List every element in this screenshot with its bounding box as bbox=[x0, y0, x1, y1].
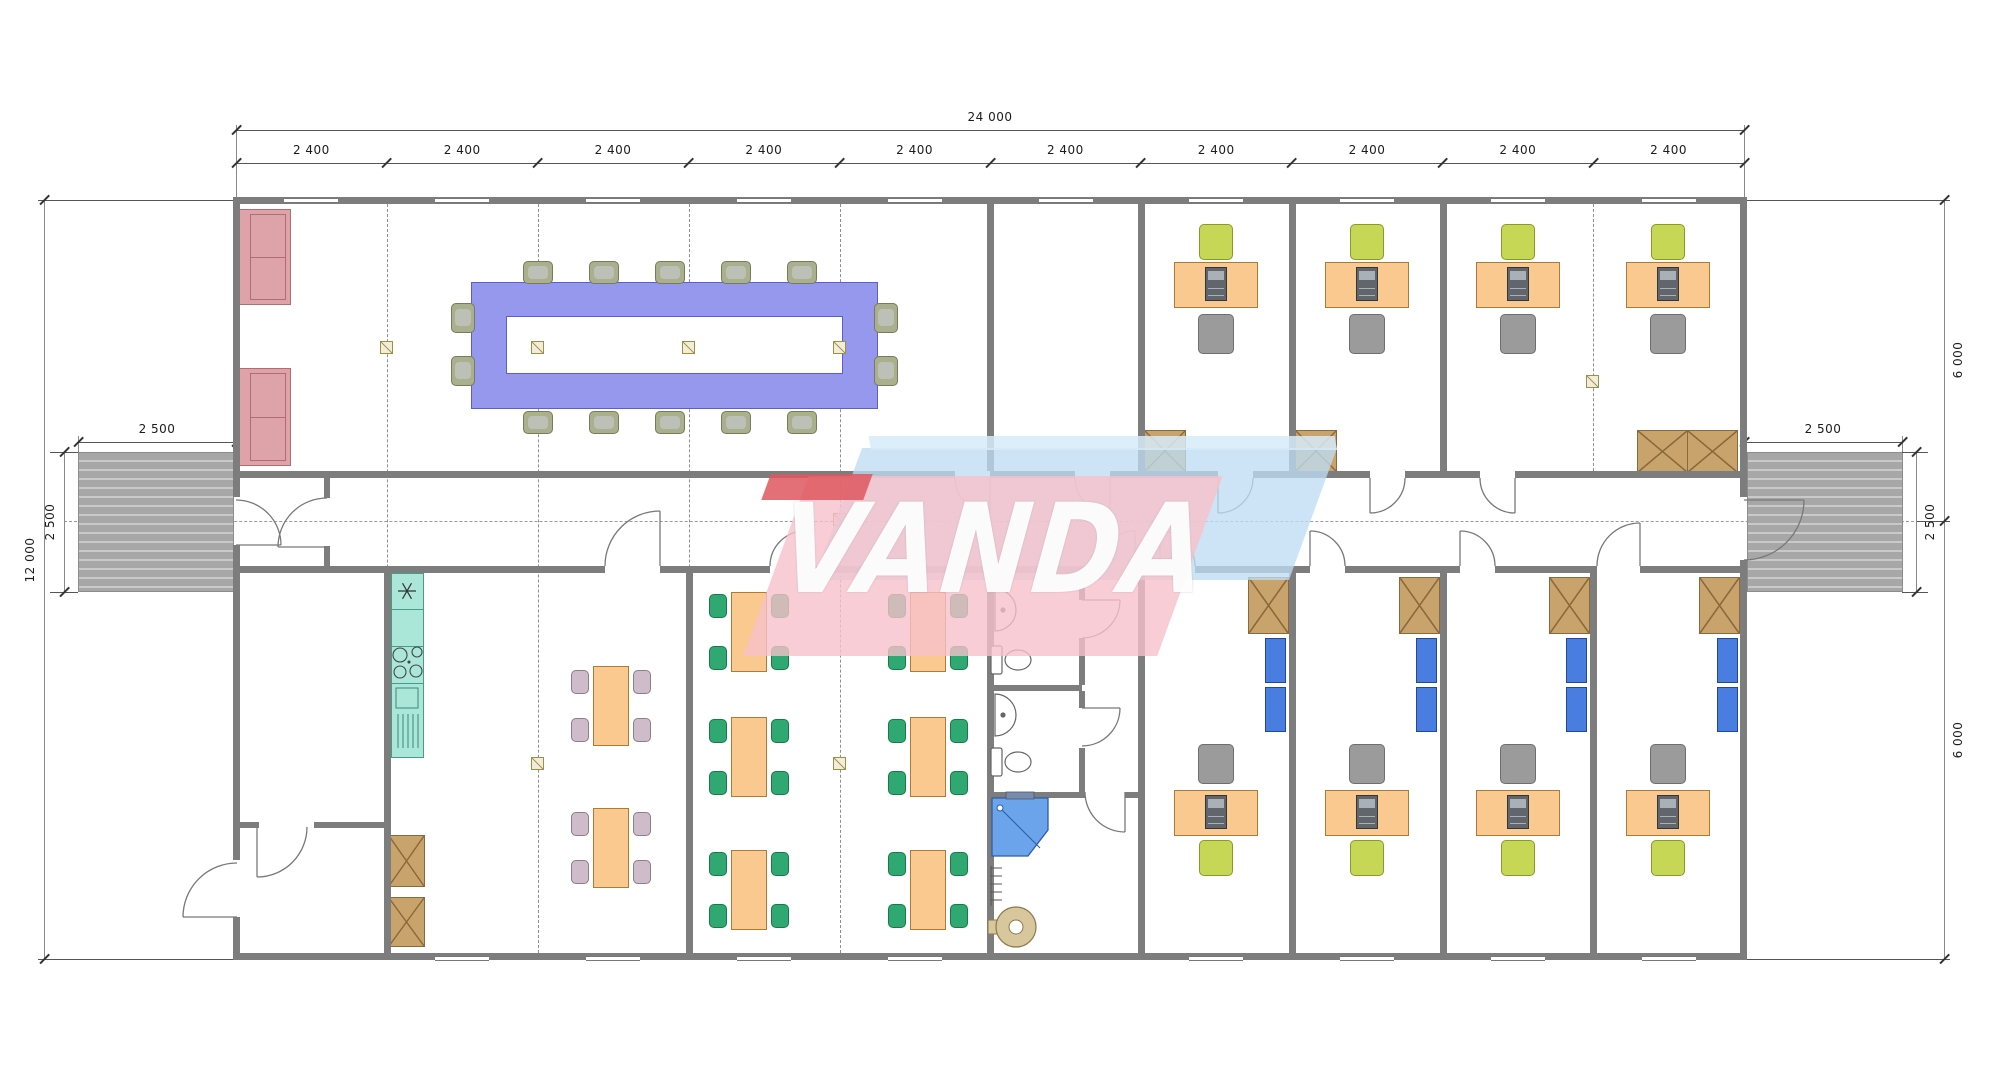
wall bbox=[1079, 638, 1085, 685]
conference-chair bbox=[655, 261, 685, 284]
dining-chair-green bbox=[771, 771, 789, 795]
office-chair-gray bbox=[1500, 314, 1536, 354]
dining-chair-green bbox=[950, 646, 968, 670]
computer-vents bbox=[1660, 288, 1676, 296]
wall bbox=[233, 917, 240, 960]
dining-chair-green bbox=[709, 904, 727, 928]
conference-table-opening bbox=[506, 316, 843, 374]
window bbox=[435, 198, 489, 203]
computer-screen bbox=[1359, 271, 1375, 280]
wall bbox=[1440, 573, 1447, 953]
wardrobe bbox=[1144, 430, 1186, 472]
dimension-line bbox=[1747, 200, 1950, 201]
window bbox=[888, 198, 942, 203]
computer-screen bbox=[1359, 799, 1375, 808]
dimension-line bbox=[236, 130, 1744, 131]
sofa-cushions bbox=[250, 373, 286, 461]
conference-chair-seat bbox=[594, 266, 614, 279]
computer-vents bbox=[1208, 816, 1224, 824]
office-top-spare bbox=[994, 204, 1138, 471]
window bbox=[1642, 198, 1696, 203]
conference-chair bbox=[523, 411, 553, 434]
dining-chair-green bbox=[771, 904, 789, 928]
window bbox=[435, 956, 489, 961]
office-chair-lime bbox=[1199, 840, 1233, 876]
dimension-extension-line bbox=[64, 452, 65, 592]
window bbox=[737, 198, 791, 203]
wall bbox=[1740, 560, 1747, 960]
conference-chair bbox=[874, 303, 898, 333]
computer-icon bbox=[1356, 267, 1378, 301]
office-chair-lime bbox=[1501, 840, 1535, 876]
kitchen-counter-divider bbox=[392, 683, 423, 684]
window bbox=[1491, 956, 1545, 961]
conference-chair bbox=[523, 261, 553, 284]
wall bbox=[987, 204, 994, 471]
dining-chair-green bbox=[771, 852, 789, 876]
conference-chair bbox=[721, 261, 751, 284]
conference-chair-seat bbox=[455, 362, 470, 379]
canteen-chair-mauve bbox=[633, 860, 651, 884]
wall-cabinet-blue bbox=[1265, 687, 1286, 732]
conference-chair-seat bbox=[528, 416, 548, 429]
wall-cabinet-blue bbox=[1717, 638, 1738, 683]
office-chair-lime bbox=[1651, 224, 1685, 260]
dining-chair-green bbox=[888, 852, 906, 876]
column-symbol bbox=[833, 513, 846, 526]
wardrobe-panel bbox=[1400, 578, 1439, 633]
column-symbol bbox=[833, 341, 846, 354]
wardrobe-panel bbox=[389, 836, 424, 886]
dim-bay-width: 2 400 bbox=[896, 143, 933, 157]
conference-chair bbox=[451, 303, 475, 333]
wall bbox=[236, 566, 605, 573]
sofa bbox=[239, 368, 291, 466]
canteen-chair-mauve bbox=[571, 718, 589, 742]
conference-chair-seat bbox=[878, 309, 893, 326]
dining-table bbox=[910, 850, 946, 930]
computer-screen bbox=[1510, 271, 1526, 280]
wall bbox=[1590, 573, 1597, 953]
computer-icon bbox=[1356, 795, 1378, 829]
column-symbol bbox=[531, 757, 544, 770]
double-wardrobe bbox=[1637, 430, 1738, 473]
dim-half-height-bottom: 6 000 bbox=[1951, 722, 1965, 759]
dining-chair-green bbox=[888, 646, 906, 670]
computer-screen bbox=[1660, 799, 1676, 808]
wardrobe bbox=[1399, 577, 1440, 634]
canteen-chair-mauve bbox=[633, 812, 651, 836]
conference-chair bbox=[451, 356, 475, 386]
wall bbox=[990, 792, 1085, 798]
wardrobe-panel bbox=[1249, 578, 1288, 633]
conference-chair bbox=[787, 411, 817, 434]
wall-cabinet-blue bbox=[1416, 638, 1437, 683]
sofa-cushion-split bbox=[251, 257, 285, 258]
wall bbox=[1079, 748, 1085, 792]
conference-chair-seat bbox=[726, 266, 746, 279]
sofa-cushion-split bbox=[251, 417, 285, 418]
dimension-line bbox=[1744, 442, 1902, 443]
wall bbox=[324, 478, 330, 498]
dim-bay-width: 2 400 bbox=[595, 143, 632, 157]
kitchen-counter-divider bbox=[392, 646, 423, 647]
office-chair-lime bbox=[1501, 224, 1535, 260]
corridor bbox=[240, 478, 1740, 566]
wall bbox=[1253, 471, 1370, 478]
window bbox=[586, 198, 640, 203]
computer-vents bbox=[1510, 288, 1526, 296]
conference-chair-seat bbox=[528, 266, 548, 279]
wardrobe-panel bbox=[1638, 431, 1688, 472]
entrance-ramp-right bbox=[1747, 452, 1903, 592]
office-chair-gray bbox=[1349, 314, 1385, 354]
dining-chair-green bbox=[709, 719, 727, 743]
conference-chair-seat bbox=[594, 416, 614, 429]
conference-chair bbox=[655, 411, 685, 434]
dining-chair-green bbox=[771, 719, 789, 743]
dining-chair-green bbox=[888, 719, 906, 743]
wall bbox=[1345, 566, 1460, 573]
conference-chair bbox=[589, 411, 619, 434]
dining-chair-green bbox=[709, 594, 727, 618]
conference-chair-seat bbox=[792, 416, 812, 429]
kitchen-counter bbox=[391, 573, 424, 758]
window bbox=[888, 956, 942, 961]
dim-ramp-width-left: 2 500 bbox=[139, 422, 176, 436]
window bbox=[1340, 956, 1394, 961]
window bbox=[737, 956, 791, 961]
wardrobe-panel bbox=[1145, 431, 1185, 471]
dim-bay-width: 2 400 bbox=[1499, 143, 1536, 157]
conference-chair-seat bbox=[878, 362, 893, 379]
window bbox=[1039, 198, 1093, 203]
wall bbox=[314, 822, 387, 828]
entry-hall bbox=[240, 573, 384, 822]
dining-chair-green bbox=[771, 594, 789, 618]
dining-chair-green bbox=[950, 904, 968, 928]
conference-chair bbox=[874, 356, 898, 386]
entrance-ramp-left bbox=[78, 452, 234, 592]
office-chair-gray bbox=[1349, 744, 1385, 784]
corridor-centerline bbox=[64, 521, 1944, 522]
wall bbox=[1440, 204, 1447, 471]
wall-cabinet-blue bbox=[1717, 687, 1738, 732]
window bbox=[1189, 198, 1243, 203]
wardrobe bbox=[388, 835, 425, 887]
conference-chair-seat bbox=[792, 266, 812, 279]
dining-table bbox=[731, 592, 767, 672]
wall bbox=[1195, 566, 1310, 573]
computer-vents bbox=[1359, 288, 1375, 296]
dining-chair-green bbox=[888, 594, 906, 618]
column-symbol bbox=[1586, 375, 1599, 388]
dim-ramp-depth-right: 2 500 bbox=[1923, 504, 1937, 541]
office-chair-gray bbox=[1198, 744, 1234, 784]
conference-chair bbox=[589, 261, 619, 284]
dining-table bbox=[731, 717, 767, 797]
window bbox=[1491, 198, 1545, 203]
office-chair-lime bbox=[1350, 840, 1384, 876]
dimension-line bbox=[38, 200, 233, 201]
computer-icon bbox=[1205, 795, 1227, 829]
computer-screen bbox=[1208, 799, 1224, 808]
conference-chair-seat bbox=[726, 416, 746, 429]
sofa-cushions bbox=[250, 214, 286, 300]
dim-bay-width: 2 400 bbox=[1349, 143, 1386, 157]
dimension-extension-line bbox=[44, 200, 45, 959]
column-symbol bbox=[682, 341, 695, 354]
dim-building-height: 12 000 bbox=[23, 538, 37, 583]
computer-vents bbox=[1208, 288, 1224, 296]
wall-cabinet-blue bbox=[1566, 687, 1587, 732]
conference-chair-seat bbox=[660, 266, 680, 279]
dim-bay-width: 2 400 bbox=[293, 143, 330, 157]
wall bbox=[1125, 792, 1141, 798]
office-chair-lime bbox=[1350, 224, 1384, 260]
dim-ramp-width-right: 2 500 bbox=[1805, 422, 1842, 436]
window bbox=[1189, 956, 1243, 961]
storage-room bbox=[240, 828, 384, 953]
wall bbox=[1079, 691, 1085, 708]
dining-chair-green bbox=[950, 852, 968, 876]
computer-vents bbox=[1510, 816, 1526, 824]
wall bbox=[1495, 566, 1597, 573]
window bbox=[1340, 198, 1394, 203]
wall bbox=[233, 822, 259, 828]
wardrobe bbox=[388, 897, 425, 947]
wall bbox=[1079, 573, 1085, 600]
conference-chair-seat bbox=[455, 309, 470, 326]
wall bbox=[1740, 197, 1747, 497]
office-chair-gray bbox=[1650, 744, 1686, 784]
dining-chair-green bbox=[709, 646, 727, 670]
wc-room-1 bbox=[994, 573, 1079, 685]
wall bbox=[1110, 471, 1218, 478]
dim-overall-width: 24 000 bbox=[968, 110, 1013, 124]
office-chair-lime bbox=[1199, 224, 1233, 260]
dim-half-height-top: 6 000 bbox=[1951, 342, 1965, 379]
wardrobe-panel bbox=[1296, 431, 1336, 471]
column-symbol bbox=[531, 341, 544, 354]
wardrobe-panel bbox=[389, 898, 424, 946]
grid-line bbox=[1593, 204, 1594, 471]
canteen-table bbox=[593, 666, 629, 746]
conference-chair-seat bbox=[660, 416, 680, 429]
computer-icon bbox=[1507, 267, 1529, 301]
wall bbox=[990, 471, 1075, 478]
wall bbox=[987, 573, 994, 953]
wall bbox=[1515, 471, 1744, 478]
column-symbol bbox=[833, 757, 846, 770]
dining-chair-green bbox=[771, 646, 789, 670]
computer-icon bbox=[1657, 795, 1679, 829]
dining-chair-green bbox=[950, 594, 968, 618]
canteen-chair-mauve bbox=[633, 670, 651, 694]
dim-bay-width: 2 400 bbox=[1650, 143, 1687, 157]
shower-room bbox=[994, 798, 1141, 953]
dining-chair-green bbox=[950, 719, 968, 743]
dining-chair-green bbox=[888, 904, 906, 928]
column-symbol bbox=[380, 341, 393, 354]
computer-vents bbox=[1660, 816, 1676, 824]
wall bbox=[1289, 573, 1296, 953]
dining-chair-green bbox=[950, 771, 968, 795]
canteen-chair-mauve bbox=[571, 812, 589, 836]
dimension-line bbox=[78, 442, 236, 443]
window bbox=[586, 956, 640, 961]
wall bbox=[1138, 204, 1145, 471]
computer-vents bbox=[1359, 816, 1375, 824]
kitchen-counter-divider bbox=[392, 609, 423, 610]
canteen-table bbox=[593, 808, 629, 888]
wall bbox=[233, 545, 240, 860]
wall bbox=[990, 685, 1082, 691]
wardrobe-panel bbox=[1550, 578, 1589, 633]
dining-table bbox=[910, 717, 946, 797]
wardrobe-panel bbox=[1688, 431, 1737, 472]
dim-bay-width: 2 400 bbox=[745, 143, 782, 157]
wall bbox=[236, 471, 955, 478]
floor-plan: VANDA 24 0002 4002 4002 4002 4002 4002 4… bbox=[0, 0, 2000, 1069]
computer-icon bbox=[1205, 267, 1227, 301]
dining-chair-green bbox=[709, 771, 727, 795]
computer-screen bbox=[1510, 799, 1526, 808]
office-chair-gray bbox=[1198, 314, 1234, 354]
window bbox=[284, 198, 338, 203]
dimension-extension-line bbox=[1916, 452, 1917, 592]
wc-room-2 bbox=[994, 691, 1079, 792]
dining-table bbox=[910, 592, 946, 672]
wall bbox=[805, 566, 1100, 573]
wardrobe bbox=[1549, 577, 1590, 634]
wall-cabinet-blue bbox=[1265, 638, 1286, 683]
wall-cabinet-blue bbox=[1416, 687, 1437, 732]
wall bbox=[384, 573, 391, 953]
canteen-chair-mauve bbox=[633, 718, 651, 742]
conference-chair bbox=[787, 261, 817, 284]
wardrobe-panel bbox=[1700, 578, 1739, 633]
canteen-chair-mauve bbox=[571, 860, 589, 884]
dim-ramp-depth-left: 2 500 bbox=[43, 504, 57, 541]
wall bbox=[233, 197, 240, 497]
office-chair-gray bbox=[1500, 744, 1536, 784]
dimension-line bbox=[38, 959, 233, 960]
dining-chair-green bbox=[888, 771, 906, 795]
wall-cabinet-blue bbox=[1566, 638, 1587, 683]
dining-chair-green bbox=[709, 852, 727, 876]
computer-screen bbox=[1660, 271, 1676, 280]
office-chair-lime bbox=[1651, 840, 1685, 876]
wardrobe bbox=[1699, 577, 1740, 634]
wall bbox=[660, 566, 770, 573]
dimension-extension-line bbox=[1944, 200, 1945, 959]
sofa bbox=[239, 209, 291, 305]
computer-icon bbox=[1657, 267, 1679, 301]
wardrobe bbox=[1248, 577, 1289, 634]
computer-screen bbox=[1208, 271, 1224, 280]
dining-table bbox=[731, 850, 767, 930]
window bbox=[1642, 956, 1696, 961]
wall bbox=[1405, 471, 1480, 478]
dim-bay-width: 2 400 bbox=[1198, 143, 1235, 157]
canteen-chair-mauve bbox=[571, 670, 589, 694]
computer-icon bbox=[1507, 795, 1529, 829]
wall bbox=[1138, 573, 1145, 953]
wall bbox=[324, 546, 330, 566]
wall bbox=[1135, 566, 1160, 573]
wall bbox=[1640, 566, 1744, 573]
dim-bay-width: 2 400 bbox=[444, 143, 481, 157]
wall bbox=[1289, 204, 1296, 471]
wardrobe bbox=[1295, 430, 1337, 472]
dimension-line bbox=[1747, 959, 1950, 960]
conference-chair bbox=[721, 411, 751, 434]
office-chair-gray bbox=[1650, 314, 1686, 354]
dim-bay-width: 2 400 bbox=[1047, 143, 1084, 157]
wall bbox=[686, 573, 693, 953]
